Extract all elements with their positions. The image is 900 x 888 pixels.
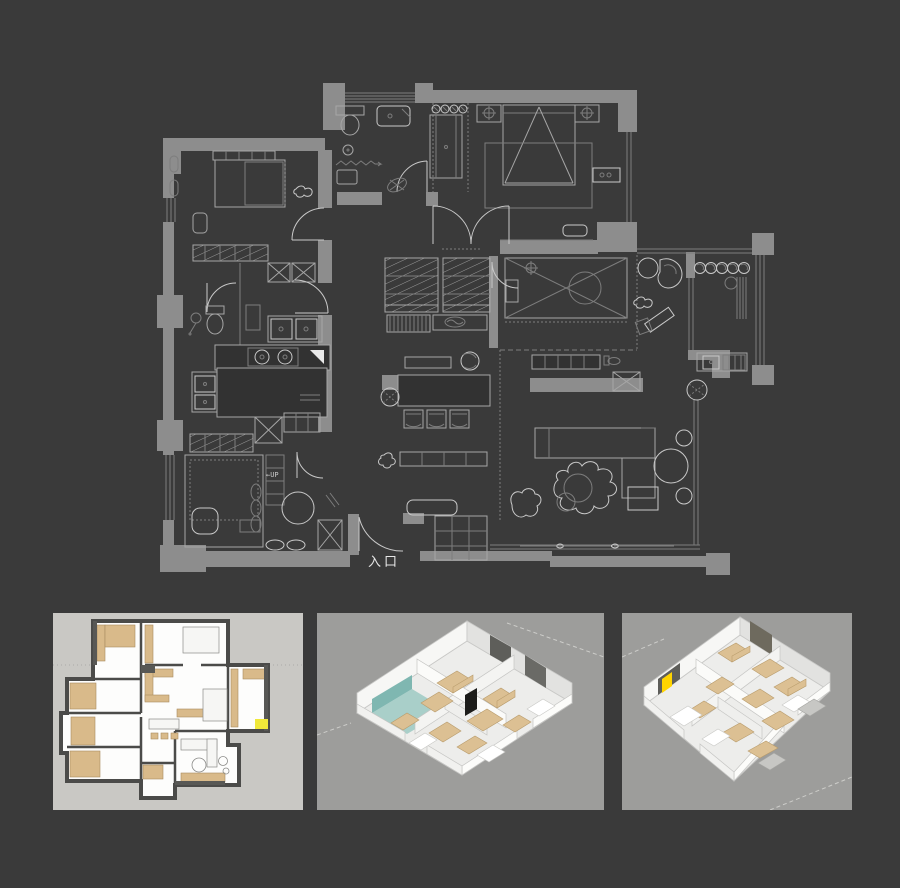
bedroom-topleft: [170, 151, 324, 282]
stairs-up-label: ←UP: [266, 471, 279, 479]
thumbnail-isometric-render-a[interactable]: [317, 613, 604, 810]
accent-yellow: [255, 719, 268, 729]
master-bedroom: [433, 105, 620, 249]
entrance-label: 入口: [368, 555, 400, 570]
thumbnail-isometric-render-b[interactable]: [622, 613, 852, 810]
balcony: [687, 263, 750, 401]
closet-hooks: [432, 105, 467, 113]
bathroom-top: [336, 103, 468, 195]
walls: [157, 83, 774, 575]
wardrobe-closets: [385, 258, 490, 332]
design-board: ←UP 入口: [0, 0, 900, 888]
thumbnail-top-down-render[interactable]: [53, 613, 303, 810]
living-room: [511, 428, 692, 548]
bedroom-2: [492, 258, 682, 335]
bedroom-bottomleft: ←UP: [185, 434, 342, 550]
kitchen: [192, 345, 330, 443]
